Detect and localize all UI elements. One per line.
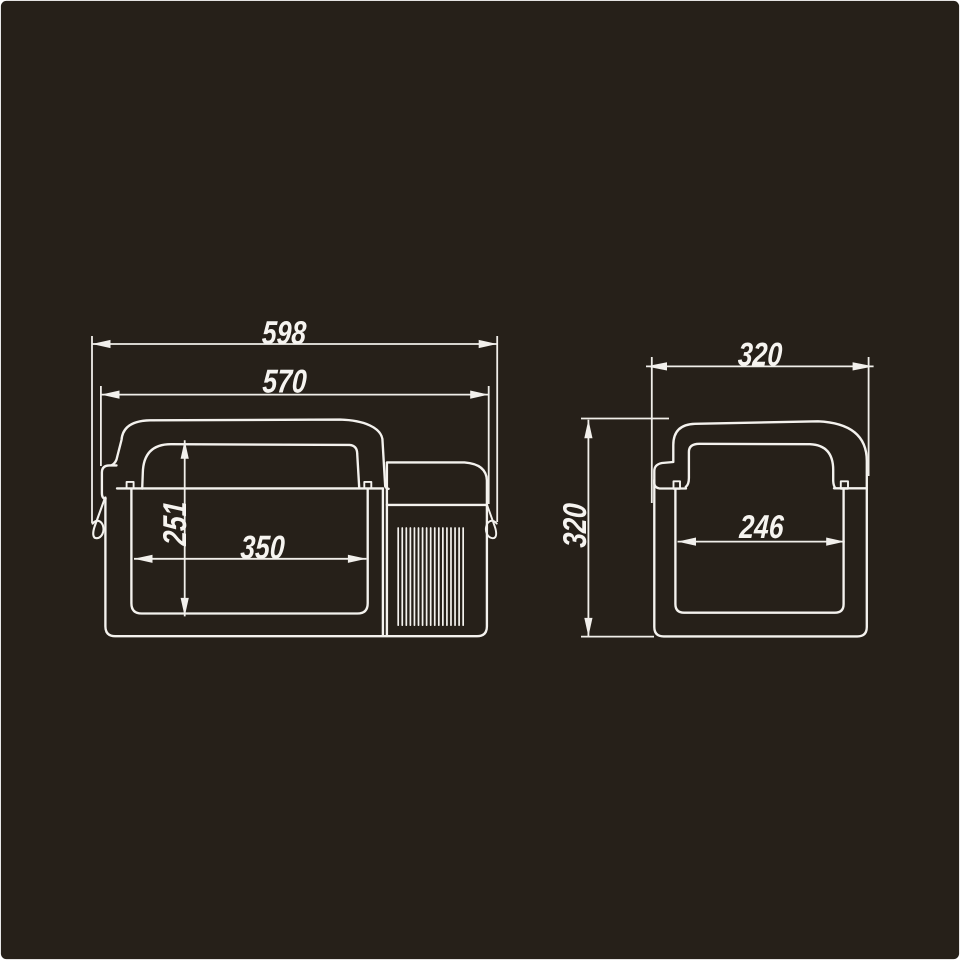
svg-text:320: 320 bbox=[737, 337, 783, 373]
svg-text:598: 598 bbox=[261, 315, 307, 351]
svg-text:350: 350 bbox=[240, 530, 286, 566]
svg-text:246: 246 bbox=[738, 509, 785, 545]
svg-text:570: 570 bbox=[262, 364, 308, 400]
svg-text:251: 251 bbox=[157, 500, 193, 547]
